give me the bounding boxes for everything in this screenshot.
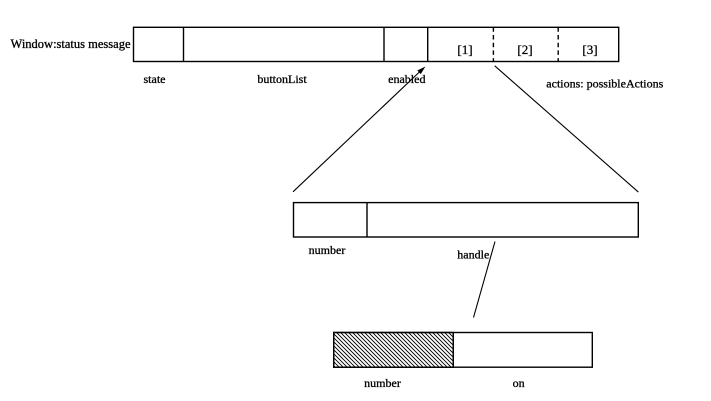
svg-text:[1]: [1] <box>457 42 472 57</box>
svg-text:[3]: [3] <box>582 42 597 57</box>
svg-text:handle: handle <box>457 248 489 262</box>
svg-text:number: number <box>364 376 401 390</box>
svg-text:Window:status message: Window:status message <box>11 37 131 51</box>
svg-text:[2]: [2] <box>517 42 532 57</box>
svg-text:state: state <box>144 72 166 86</box>
svg-text:actions: possibleActions: actions: possibleActions <box>546 77 663 91</box>
svg-text:buttonList: buttonList <box>257 72 307 86</box>
svg-text:enabled: enabled <box>388 72 425 86</box>
svg-text:on: on <box>513 376 525 390</box>
svg-text:number: number <box>309 243 346 257</box>
